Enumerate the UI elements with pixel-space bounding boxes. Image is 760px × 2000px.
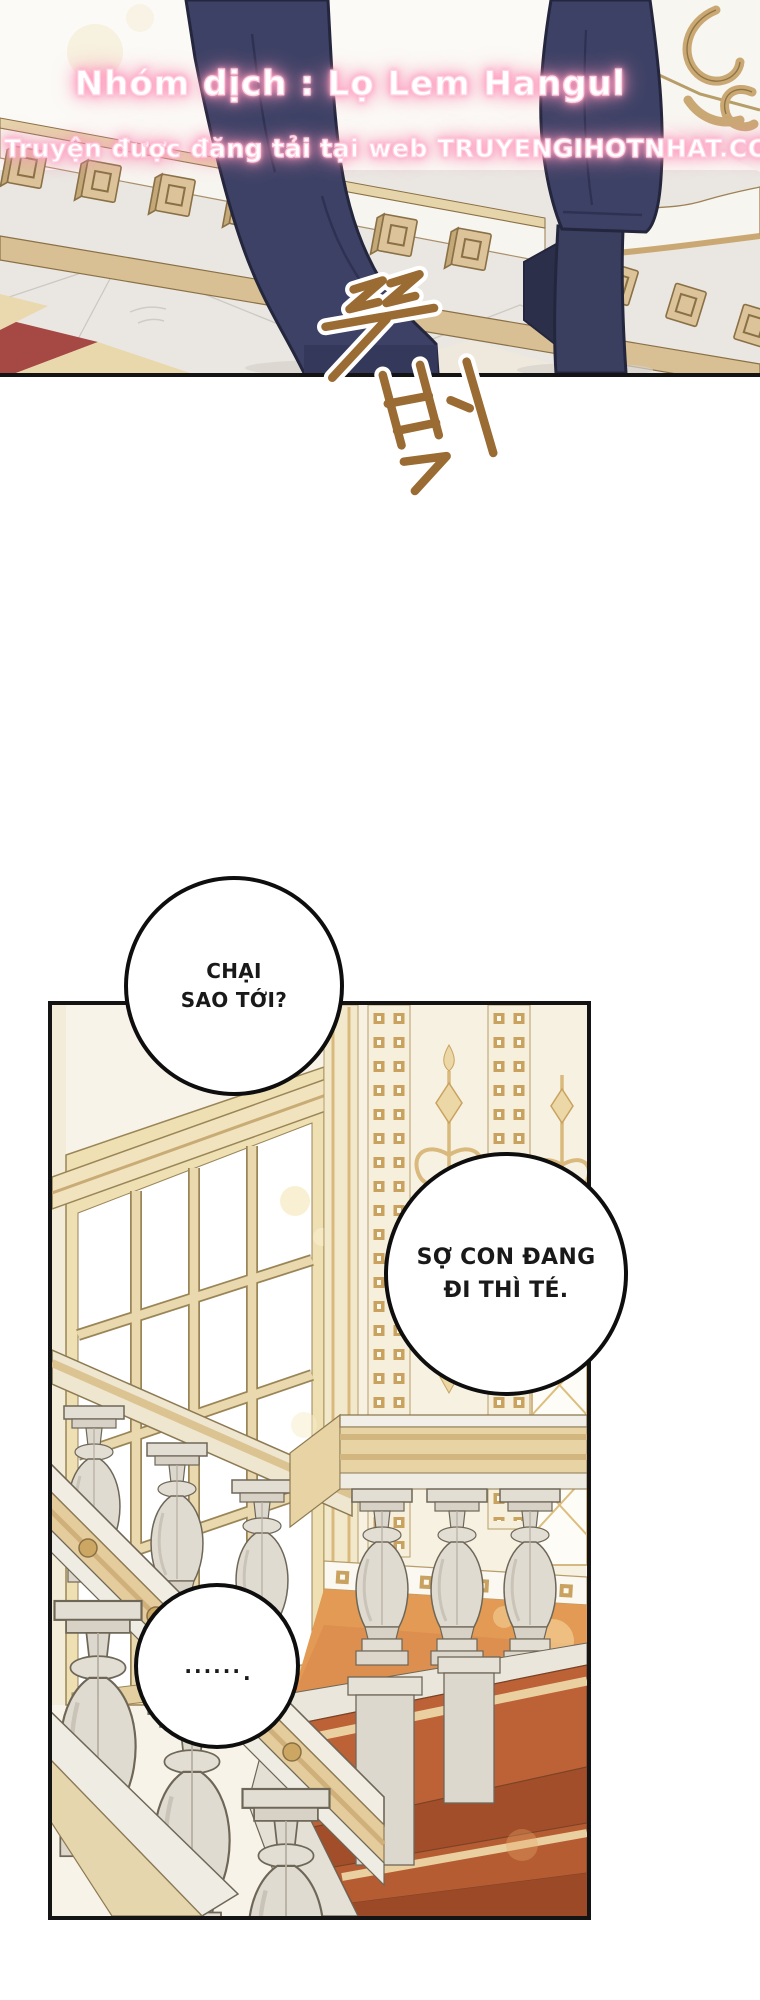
bubble-3-line-1: ....... [184, 1654, 249, 1678]
bubble-1-line-1: CHẠI [206, 957, 262, 986]
speech-bubble-1: CHẠI SAO TỚI? [124, 876, 344, 1096]
website-credit: Truyện được đăng tải tại web TRUYENGIHOT… [4, 134, 760, 163]
bubble-1-line-2: SAO TỚI? [181, 986, 287, 1015]
speech-bubble-3: ....... [134, 1583, 300, 1749]
panel-staircase [48, 1001, 591, 1920]
ellipsis-dots: ...... [184, 1654, 242, 1678]
sfx-footsteps: 뚜벅 [306, 264, 516, 504]
comic-page: Nhóm dịch : Lọ Lem Hangul Truyện được đă… [0, 0, 760, 2000]
bubble-2-line-2: ĐI THÌ TÉ. [444, 1274, 569, 1307]
staircase-illustration [52, 1005, 587, 1916]
ellipsis-period: . [243, 1661, 251, 1685]
bubble-2-line-1: SỢ CON ĐANG [417, 1241, 596, 1274]
translation-group-credit: Nhóm dịch : Lọ Lem Hangul [0, 64, 730, 104]
speech-bubble-2: SỢ CON ĐANG ĐI THÌ TÉ. [384, 1152, 628, 1396]
sfx-art [306, 264, 516, 504]
